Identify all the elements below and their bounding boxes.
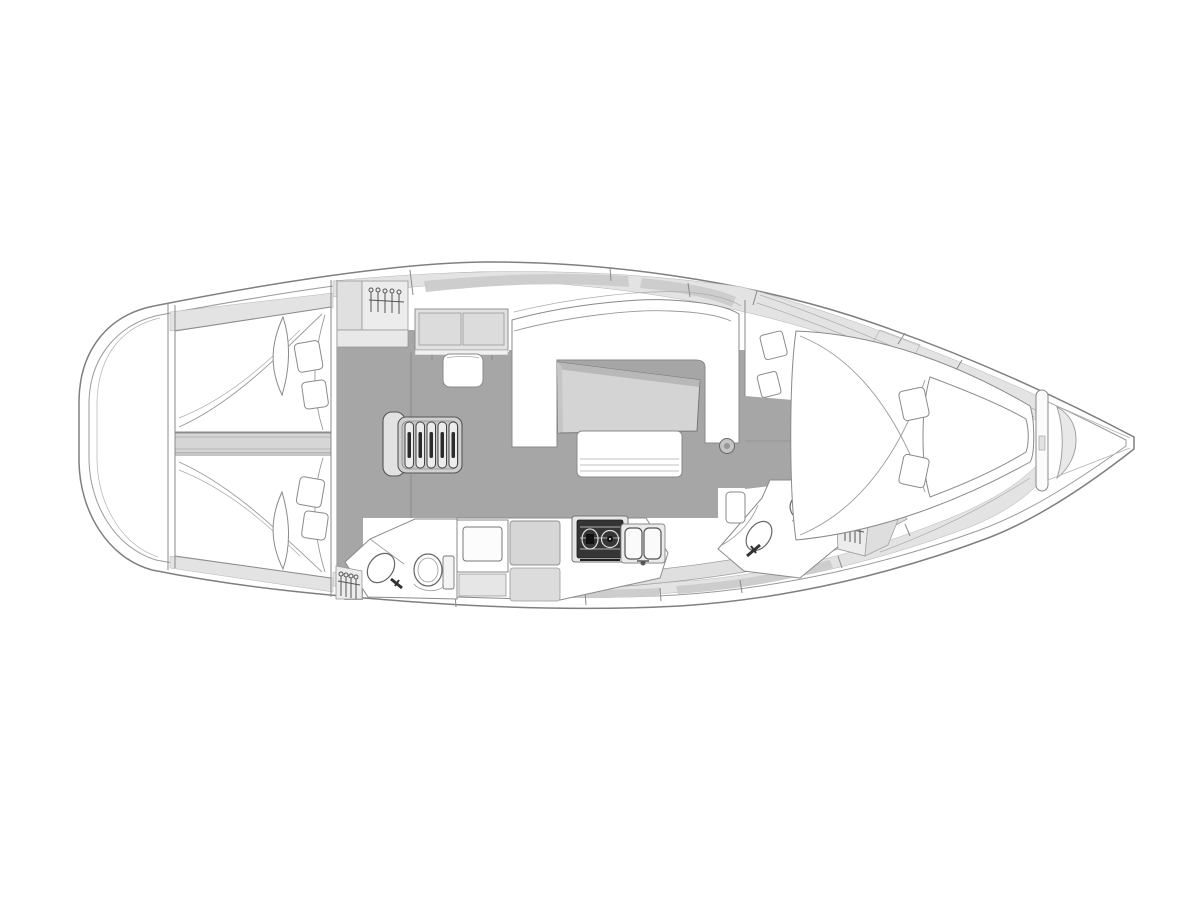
pillow xyxy=(301,510,329,540)
engine-box xyxy=(175,433,331,453)
sink-bowl-right xyxy=(644,528,661,559)
step-tread-slot xyxy=(419,432,423,458)
step-tread-slot xyxy=(452,432,456,458)
nav-seat xyxy=(443,354,483,387)
nav-cabinet-door-right xyxy=(463,313,504,345)
forward-head-cabinet xyxy=(726,492,745,523)
bench-seat-base xyxy=(577,431,682,477)
sink-faucet-base xyxy=(641,561,646,566)
galley-counter-panel xyxy=(510,521,560,565)
companionway-steps xyxy=(383,412,462,476)
step-tread-slot xyxy=(408,432,412,458)
aft-cabin-starboard xyxy=(175,455,331,578)
wardrobe-shelf xyxy=(337,330,408,347)
mast-inner xyxy=(724,443,730,449)
nav-cabinet-door-left xyxy=(419,313,461,345)
stove-burner-left-center xyxy=(586,534,594,544)
engine-compartment xyxy=(175,433,331,453)
pillow xyxy=(296,476,325,508)
stove-top xyxy=(577,520,623,558)
pillow xyxy=(898,387,930,422)
toilet-tank xyxy=(443,556,454,589)
galley-sink-unit xyxy=(621,524,665,566)
wardrobe-aft-top xyxy=(337,281,408,347)
nav-cabinet xyxy=(415,309,508,360)
refrigerator-lid xyxy=(463,527,502,561)
yacht-floor-plan-diagram xyxy=(0,0,1200,900)
nav-seat-cushion xyxy=(443,354,483,387)
step-tread-slot xyxy=(430,432,434,458)
sink-bowl-left xyxy=(625,528,642,559)
step-tread-slot xyxy=(441,432,445,458)
aft-head-wardrobe xyxy=(336,566,362,599)
pillow xyxy=(294,340,324,373)
yacht-floor-plan-page xyxy=(0,0,1200,900)
stove xyxy=(572,516,628,562)
galley-counter-panel-lower xyxy=(510,568,560,601)
step-treads xyxy=(405,422,458,468)
refrigerator-front xyxy=(459,574,506,596)
pillow xyxy=(898,454,930,489)
mast-post xyxy=(720,439,735,454)
stove-burner-right-dot xyxy=(609,538,611,540)
bow-bulkhead-detail xyxy=(1039,436,1045,450)
pillow xyxy=(301,379,329,409)
bench-seat xyxy=(577,431,682,477)
wardrobe-side-cell xyxy=(337,281,362,330)
